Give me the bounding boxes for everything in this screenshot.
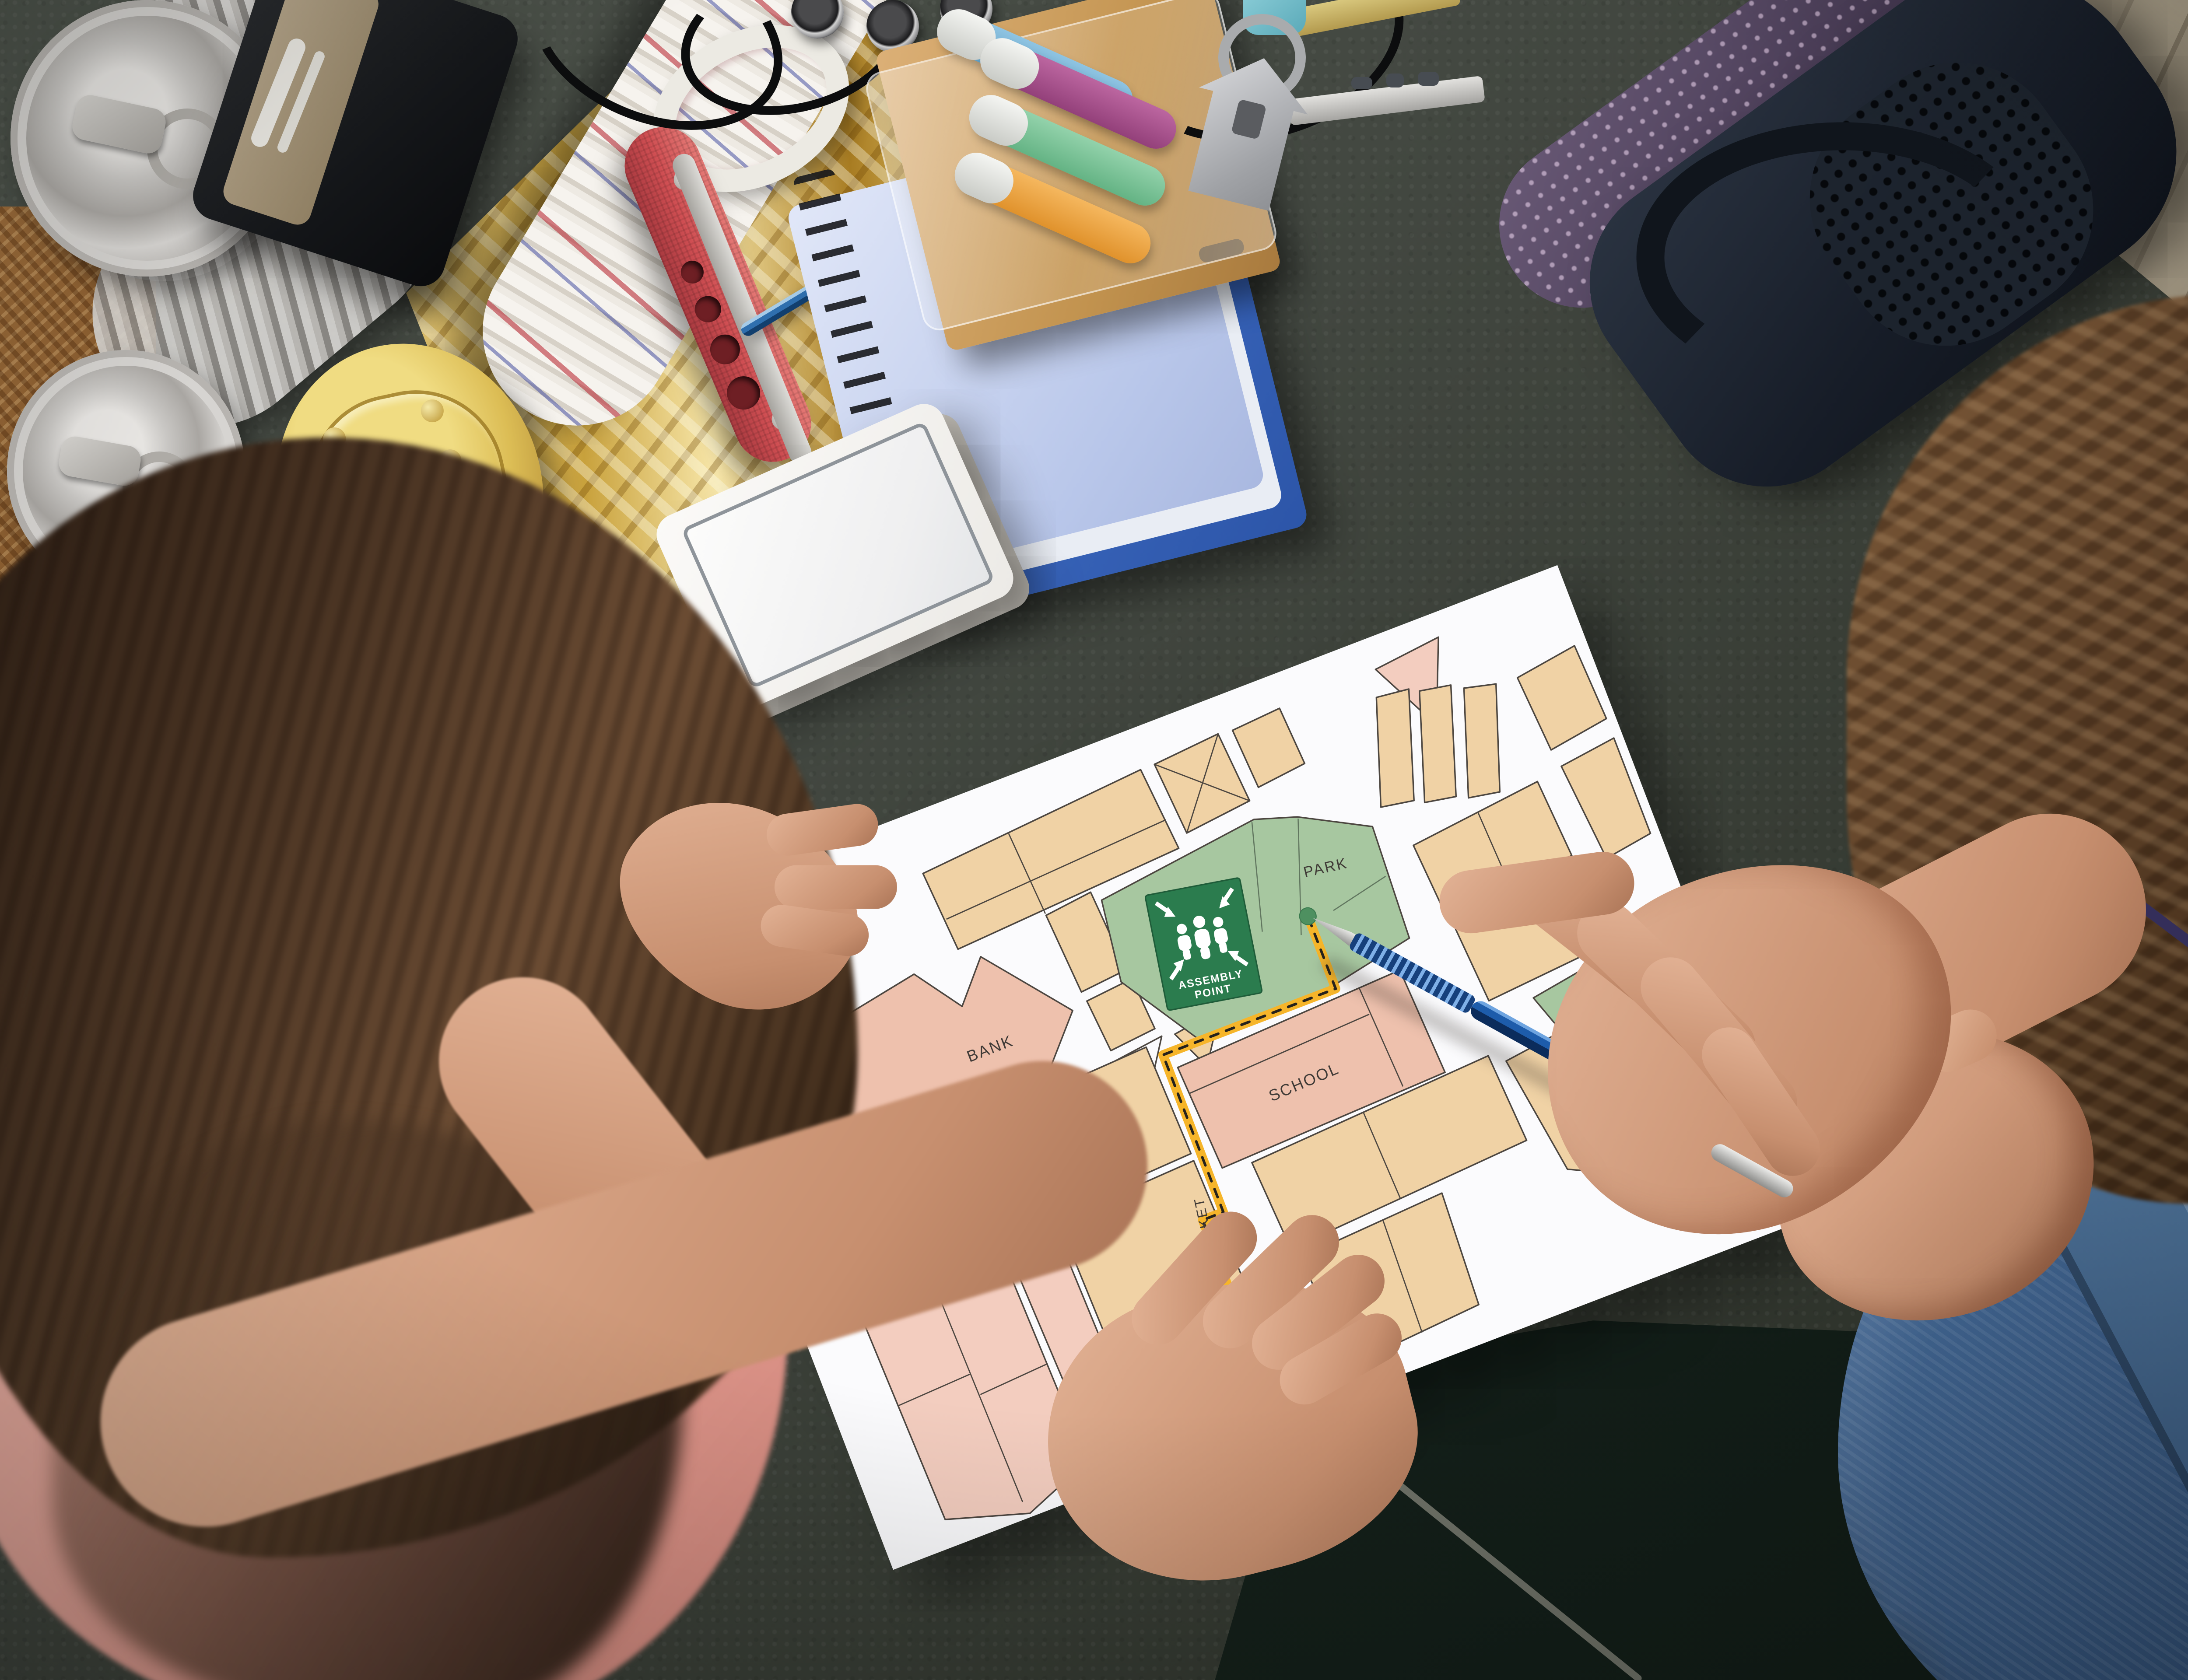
marker-cap — [962, 88, 1034, 153]
can-pull-tab — [70, 93, 168, 156]
keys — [1141, 0, 1456, 231]
key-tooth — [1351, 77, 1372, 89]
photo-scene: ASSEMBLY POINT BANK PARK SCHOOL MARKET H… — [0, 0, 2188, 1680]
knife-hole — [677, 257, 707, 287]
marker-cap — [948, 146, 1020, 210]
finger — [775, 865, 897, 909]
keychain-window — [1231, 99, 1266, 140]
map-block — [1231, 707, 1307, 789]
can-pull-tab — [56, 434, 143, 488]
knife-hole — [691, 292, 725, 326]
black-case-panel — [220, 0, 382, 228]
key-tooth — [1418, 72, 1439, 86]
key-tooth — [1386, 73, 1404, 87]
finger — [758, 902, 871, 959]
knife-hole — [705, 330, 744, 369]
